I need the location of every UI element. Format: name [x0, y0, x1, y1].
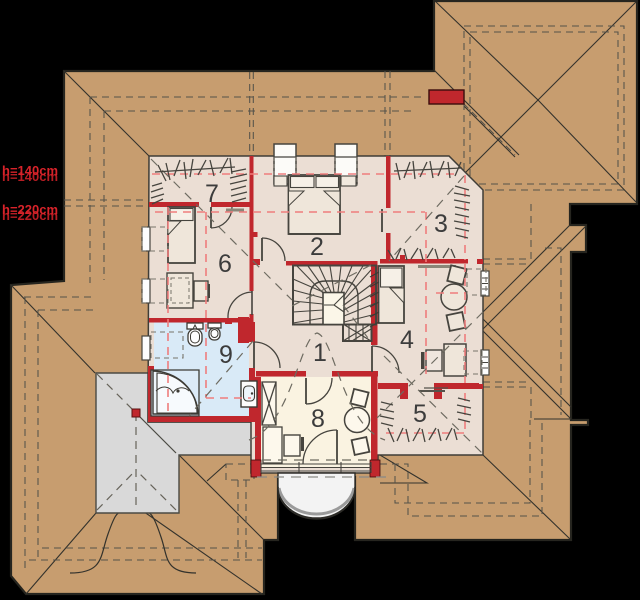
- svg-text:5: 5: [413, 400, 427, 428]
- svg-text:7: 7: [205, 180, 219, 208]
- svg-text:2: 2: [310, 233, 324, 261]
- svg-text:1: 1: [313, 339, 327, 367]
- svg-text:3: 3: [434, 210, 448, 238]
- svg-text:6: 6: [218, 250, 232, 278]
- svg-text:4: 4: [400, 326, 414, 354]
- svg-text:h=140cm: h=140cm: [2, 169, 58, 184]
- svg-text:h=220cm: h=220cm: [2, 208, 58, 223]
- svg-text:9: 9: [219, 341, 233, 369]
- svg-text:8: 8: [311, 405, 325, 433]
